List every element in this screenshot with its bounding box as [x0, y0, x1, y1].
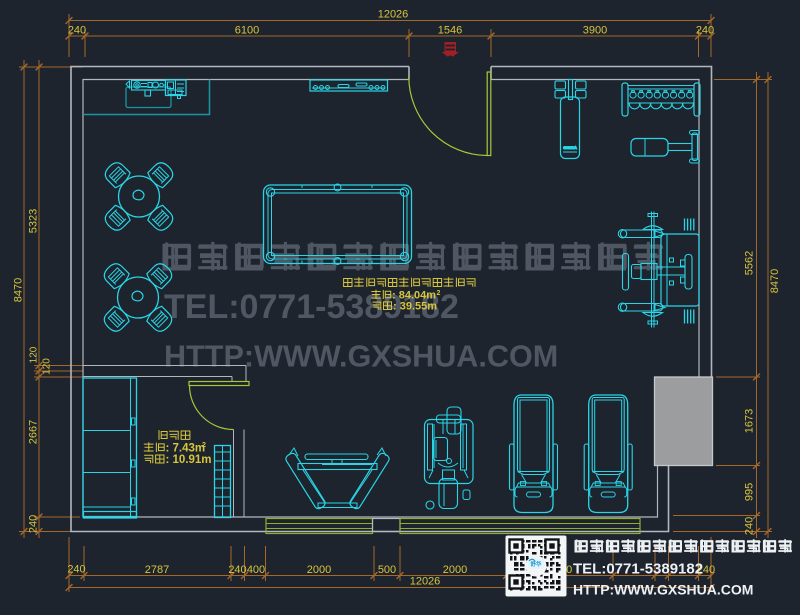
svg-text:240: 240 — [744, 517, 756, 535]
svg-text:5562: 5562 — [744, 251, 756, 275]
svg-text:6100: 6100 — [235, 25, 259, 37]
svg-text:400: 400 — [247, 564, 265, 576]
svg-text:120: 120 — [42, 358, 53, 375]
svg-text:1546: 1546 — [438, 25, 462, 37]
svg-text:1673: 1673 — [744, 409, 756, 433]
svg-text:2667: 2667 — [28, 420, 40, 444]
svg-text:12026: 12026 — [410, 576, 441, 588]
svg-text:3900: 3900 — [583, 25, 607, 37]
svg-text:240: 240 — [696, 25, 714, 37]
svg-text:舒华: 舒华 — [530, 560, 542, 568]
svg-text:2000: 2000 — [307, 564, 331, 576]
svg-text:8470: 8470 — [13, 278, 25, 302]
svg-text:240: 240 — [68, 25, 86, 37]
svg-text:: 7.43m: : 7.43m — [166, 443, 206, 455]
svg-text:2: 2 — [202, 442, 206, 449]
svg-text:120: 120 — [29, 346, 40, 363]
svg-text:GXSHUA: GXSHUA — [563, 146, 577, 150]
svg-text:HTTP:WWW.GXSHUA.COM: HTTP:WWW.GXSHUA.COM — [573, 582, 753, 598]
svg-text:995: 995 — [744, 483, 756, 501]
svg-text:12026: 12026 — [378, 9, 409, 21]
svg-text:8470: 8470 — [769, 269, 781, 293]
svg-text:HTTP:WWW.GXSHUA.COM: HTTP:WWW.GXSHUA.COM — [164, 340, 558, 374]
svg-text:240: 240 — [28, 515, 40, 533]
svg-text:2000: 2000 — [443, 564, 467, 576]
svg-text:: 10.91m: : 10.91m — [166, 454, 212, 466]
svg-text:240: 240 — [228, 564, 246, 576]
svg-text:5323: 5323 — [28, 209, 40, 233]
svg-text:240: 240 — [67, 564, 85, 576]
svg-text:: 39.55m: : 39.55m — [393, 301, 437, 313]
svg-text:2787: 2787 — [145, 564, 169, 576]
svg-text:500: 500 — [378, 564, 396, 576]
svg-text:TEL:0771-5389182: TEL:0771-5389182 — [573, 561, 703, 578]
svg-text:2: 2 — [437, 290, 441, 297]
